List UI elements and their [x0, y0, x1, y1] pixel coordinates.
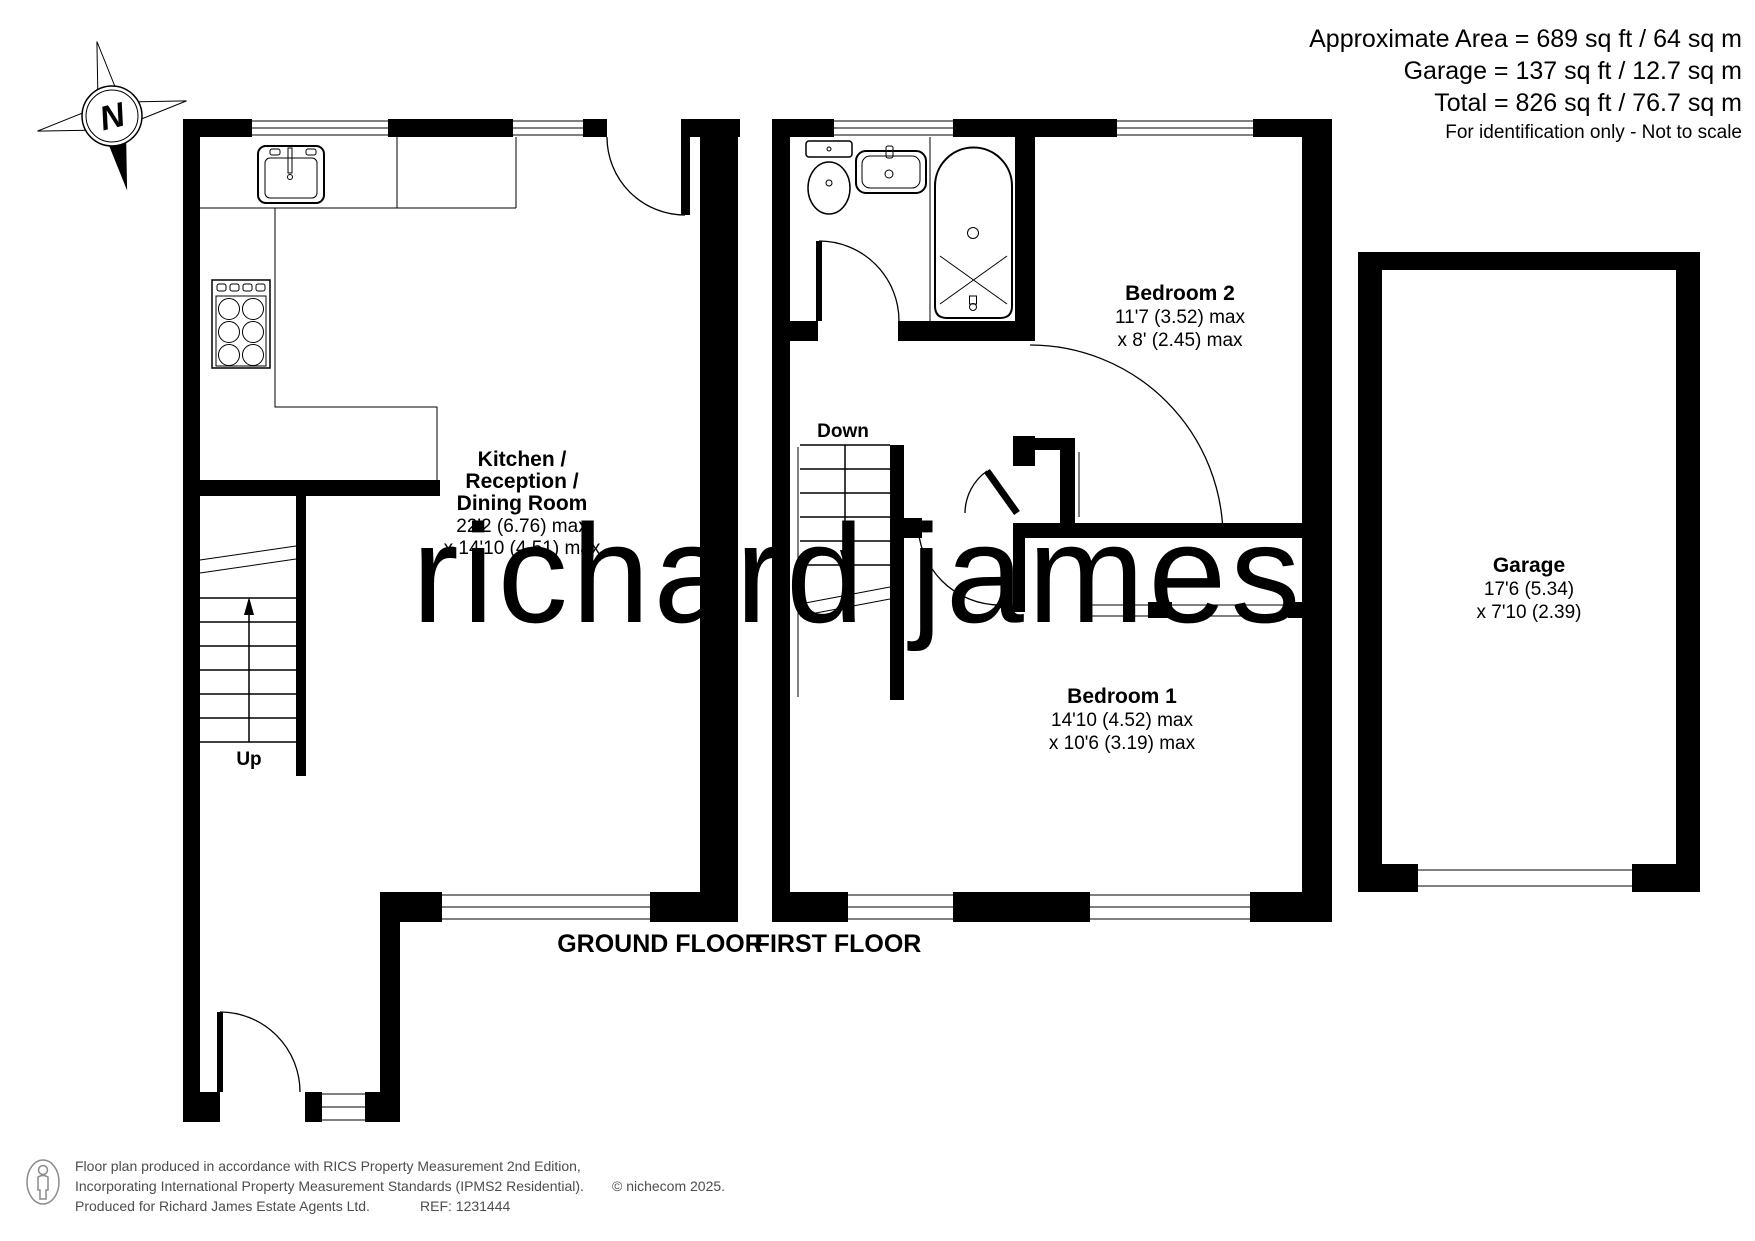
- gf-window-top-left: [252, 119, 388, 137]
- garage-plan: Garage 17'6 (5.34) x 7'10 (2.39): [1358, 252, 1700, 892]
- stove-icon: [212, 280, 270, 368]
- garage-dims-line1: 17'6 (5.34): [1484, 579, 1574, 600]
- footer-copyright: © nichecom 2025.: [612, 1178, 725, 1194]
- kitchen-name-line1: Kitchen /: [478, 448, 567, 471]
- kitchen-name-line3: Dining Room: [457, 492, 588, 515]
- gf-window-extension: [322, 1092, 365, 1122]
- gf-back-door: [217, 1012, 305, 1122]
- garage-area-text: Garage = 137 sq ft / 12.7 sq m: [1404, 57, 1742, 85]
- gf-entry-door: [604, 119, 690, 215]
- kitchen-dims-line2: x 14'10 (4.51) max: [444, 538, 601, 559]
- footer: Floor plan produced in accordance with R…: [27, 1158, 725, 1214]
- floorplan-canvas: richard james Approximate Area = 689 sq …: [0, 0, 1755, 1241]
- garage-top-wall: [1358, 252, 1700, 270]
- bedroom1-name: Bedroom 1: [1067, 685, 1177, 708]
- bedroom-divider-wall: [1013, 523, 1332, 538]
- ff-window-bottom-left: [848, 892, 953, 922]
- ff-closet-wall-side: [1060, 438, 1075, 523]
- person-icon: [27, 1160, 59, 1204]
- bedroom2-name: Bedroom 2: [1125, 282, 1235, 305]
- gf-stairs: [200, 546, 296, 742]
- compass-north-icon: N: [38, 42, 187, 191]
- kitchen-counter: [200, 137, 516, 208]
- bedroom1-dims-line2: x 10'6 (3.19) max: [1049, 733, 1196, 754]
- approximate-area-text: Approximate Area = 689 sq ft / 64 sq m: [1309, 25, 1742, 53]
- gf-stair-wall: [296, 496, 306, 776]
- gf-window-bottom: [442, 892, 650, 922]
- garage-door: [1408, 870, 1642, 886]
- floorplan-page: richard james Approximate Area = 689 sq …: [0, 0, 1755, 1241]
- kitchen-room-label: Kitchen / Reception / Dining Room 22'2 (…: [444, 448, 601, 559]
- scale-disclaimer-text: For identification only - Not to scale: [1445, 122, 1742, 143]
- ff-window-top-right: [1117, 119, 1253, 137]
- ground-floor-label: GROUND FLOOR: [557, 930, 763, 958]
- garage-label: Garage 17'6 (5.34) x 7'10 (2.39): [1476, 554, 1581, 623]
- first-floor-label: FIRST FLOOR: [755, 930, 922, 958]
- header-area-summary: Approximate Area = 689 sq ft / 64 sq m G…: [1309, 25, 1742, 143]
- footer-reference: REF: 1231444: [420, 1198, 510, 1214]
- total-area-text: Total = 826 sq ft / 76.7 sq m: [1434, 89, 1742, 117]
- gf-left-wall: [183, 119, 200, 1122]
- gf-extension-right-wall: [380, 892, 400, 1122]
- bedroom2-label: Bedroom 2 11'7 (3.52) max x 8' (2.45) ma…: [1115, 282, 1246, 351]
- bedroom2-dims-line1: 11'7 (3.52) max: [1115, 307, 1246, 328]
- footer-line3: Produced for Richard James Estate Agents…: [75, 1198, 370, 1214]
- ff-left-wall: [772, 119, 790, 922]
- bedroom2-dims-line2: x 8' (2.45) max: [1117, 330, 1243, 351]
- bedroom1-dims-line1: 14'10 (4.52) max: [1051, 710, 1193, 731]
- basin-icon: [856, 146, 926, 193]
- gf-kitchen-boundary: [275, 208, 437, 480]
- gf-window-top-right: [513, 119, 583, 137]
- bedroom1-side-wall: [1013, 523, 1025, 612]
- kitchen-dims-line1: 22'2 (6.76) max: [456, 516, 588, 537]
- garage-dims-line2: x 7'10 (2.39): [1476, 602, 1581, 623]
- bedroom1-label: Bedroom 1 14'10 (4.52) max x 10'6 (3.19)…: [1049, 685, 1196, 754]
- bathroom-divider-wall: [1015, 137, 1035, 341]
- garage-bottom-wall-left: [1358, 864, 1418, 892]
- gf-right-wall: [700, 119, 738, 922]
- ff-landing-post: [1013, 436, 1035, 466]
- bathroom-door: [816, 241, 899, 341]
- ff-right-wall: [1302, 119, 1332, 922]
- bathtub-icon: [935, 148, 1012, 319]
- kitchen-name-line2: Reception /: [465, 470, 578, 493]
- footer-line2: Incorporating International Property Mea…: [75, 1178, 584, 1194]
- gf-stairs-label: Up: [236, 749, 261, 770]
- garage-left-wall: [1358, 252, 1382, 892]
- garage-name: Garage: [1493, 554, 1565, 577]
- garage-right-wall: [1676, 252, 1700, 892]
- footer-line1: Floor plan produced in accordance with R…: [75, 1158, 581, 1174]
- ff-stairs-label: Down: [817, 421, 869, 442]
- ff-window-top-left: [834, 119, 953, 137]
- gf-interior-wall: [200, 480, 440, 496]
- kitchen-sink-icon: [258, 146, 324, 203]
- ff-window-bottom-right: [1090, 892, 1250, 922]
- toilet-icon: [806, 141, 852, 214]
- ff-stair-wall: [890, 445, 904, 700]
